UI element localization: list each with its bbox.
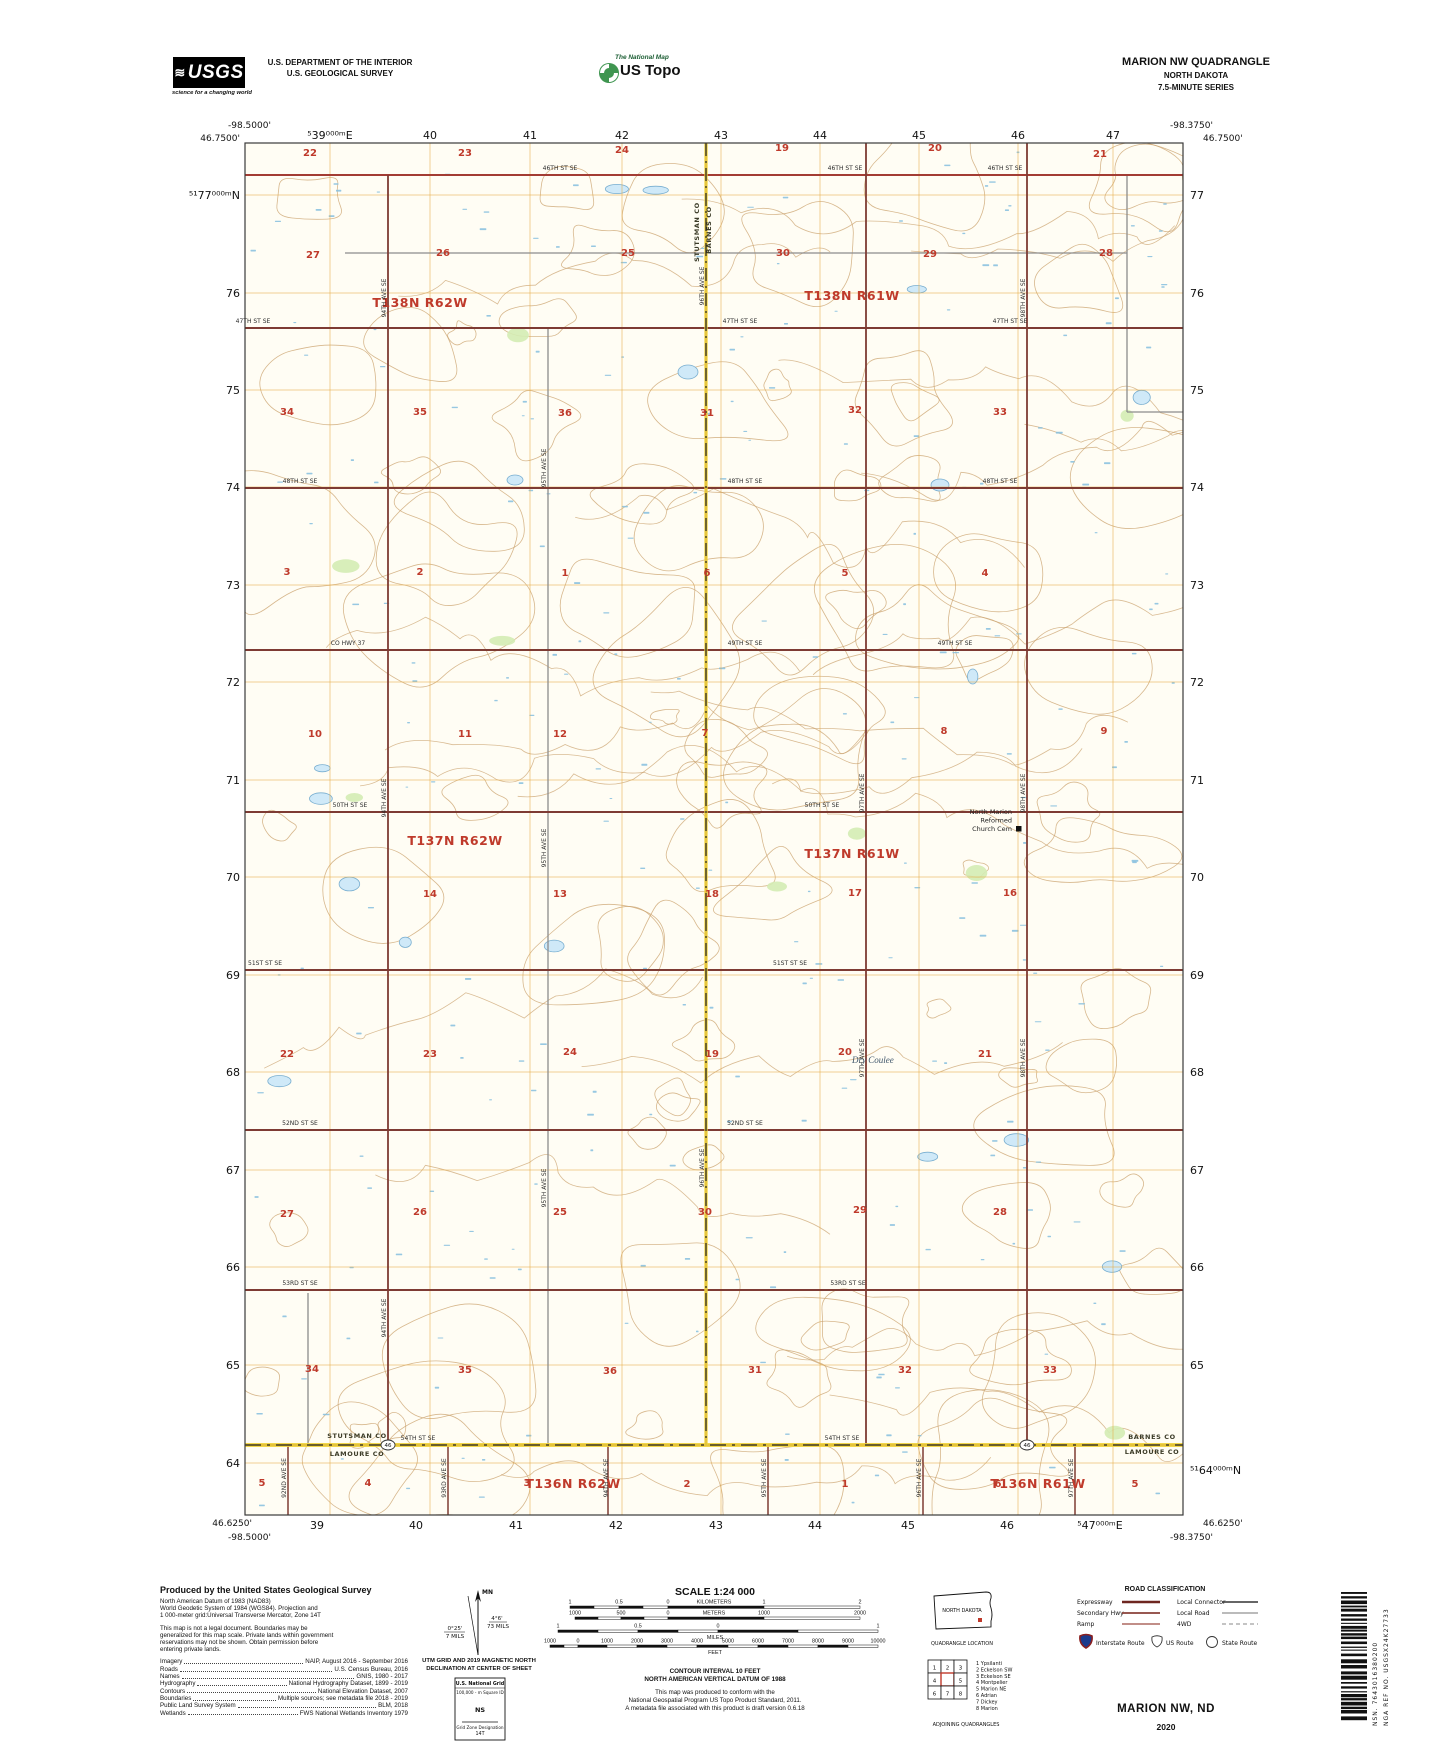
- grid-label-bottom: 42: [609, 1519, 623, 1532]
- wetland-mark: [944, 1062, 947, 1064]
- scalebar-label: 6000: [752, 1639, 764, 1645]
- scalebar-unit: FEET: [708, 1650, 722, 1656]
- county-name-vertical: BARNES CO: [705, 206, 713, 254]
- scalebar-segment: [697, 1645, 728, 1647]
- credit-row: BoundariesMultiple sources; see metadata…: [160, 1695, 408, 1702]
- grid-label-left: 76: [226, 287, 240, 300]
- road-label-vertical: 96TH AVE SE: [916, 1458, 923, 1497]
- grid-label-bottom: 39: [310, 1519, 324, 1532]
- wetland-mark: [293, 322, 296, 323]
- scalebar-label: 3000: [661, 1639, 673, 1645]
- wetland-mark: [1115, 297, 1119, 299]
- barcode-bar: [1341, 1694, 1367, 1697]
- credit-row: ImageryNAIP, August 2016 - September 201…: [160, 1658, 408, 1665]
- wetland-mark: [1149, 609, 1153, 611]
- section-number: 25: [553, 1207, 567, 1218]
- section-number: 19: [775, 143, 789, 154]
- declination-gn-line: [468, 1596, 478, 1655]
- church-label: North Marion: [970, 808, 1012, 816]
- section-number: 11: [458, 729, 472, 740]
- roadclass-label: Expressway: [1077, 1599, 1113, 1606]
- grid-label-left: 72: [226, 676, 240, 689]
- road-label-vertical: 98TH AVE SE: [1020, 278, 1027, 317]
- county-name: STUTSMAN CO: [327, 1432, 387, 1440]
- barcode-bar: [1341, 1606, 1367, 1608]
- wetland-mark: [444, 1245, 450, 1246]
- wetland-mark: [490, 1277, 496, 1279]
- wetland-mark: [301, 1378, 307, 1379]
- scalebar-segment: [550, 1645, 564, 1647]
- road-label: 51ST ST SE: [773, 960, 807, 967]
- road-label: 47TH ST SE: [723, 318, 758, 325]
- wetland-mark: [1013, 1243, 1016, 1245]
- wetland-mark: [523, 401, 527, 403]
- wetland-mark: [685, 1258, 690, 1260]
- road-label: 52ND ST SE: [282, 1120, 318, 1127]
- section-number: 32: [848, 405, 862, 416]
- pond: [310, 793, 333, 805]
- grid-label-top: 40: [423, 129, 437, 142]
- wetland-mark: [914, 435, 920, 437]
- section-number: 18: [705, 889, 719, 900]
- declination-gn-mils: 7 MILS: [446, 1634, 465, 1640]
- road-label: 48TH ST SE: [983, 478, 1018, 485]
- wetland-mark: [304, 355, 308, 356]
- wetland-mark: [709, 870, 713, 871]
- wetland-mark: [1131, 225, 1135, 226]
- wetland-mark: [259, 1505, 265, 1507]
- wetland-mark: [926, 1249, 931, 1250]
- wetland-mark: [1038, 427, 1043, 429]
- road-label-vertical: 94TH AVE SE: [381, 778, 388, 817]
- county-name: BARNES CO: [1128, 1433, 1176, 1441]
- scalebar-segment: [764, 1617, 860, 1619]
- section-number: 30: [776, 248, 790, 259]
- wetland-mark: [462, 209, 467, 210]
- wetland-mark: [450, 1025, 455, 1027]
- grid-label-bottom: 44: [808, 1519, 822, 1532]
- scalebar-segment: [678, 1630, 718, 1632]
- scalebar-label: 1: [877, 1624, 880, 1630]
- scalebar-label: 9000: [842, 1639, 854, 1645]
- wetland-mark: [1050, 805, 1057, 806]
- scalebar-label: 2000: [854, 1611, 866, 1617]
- wetland-mark: [810, 978, 813, 979]
- scalebar-label: 4000: [691, 1639, 703, 1645]
- corner-coordinate: -98.3750': [1170, 1533, 1213, 1543]
- scalebar-label: 1000: [601, 1639, 613, 1645]
- declination-mn: MN: [482, 1589, 493, 1596]
- road-label-vertical: 92ND AVE SE: [281, 1458, 288, 1498]
- scalebar-segment: [644, 1617, 668, 1619]
- legal-line: generalized for this map scale. Private …: [160, 1632, 410, 1639]
- wetland-mark: [972, 882, 978, 884]
- road-label-vertical: 96TH AVE SE: [699, 1148, 706, 1187]
- conformance-line: National Geospatial Program US Topo Prod…: [565, 1697, 865, 1705]
- wetland-mark: [438, 1338, 444, 1339]
- wetland-mark: [531, 418, 534, 419]
- credit-value: FWS National Wetlands Inventory 1979: [300, 1710, 408, 1717]
- wetland-mark: [784, 323, 788, 325]
- barcode-bar: [1341, 1601, 1367, 1605]
- wetland-mark: [1159, 230, 1163, 232]
- wetland-mark: [1132, 653, 1137, 655]
- road-label: CO HWY 37: [331, 640, 366, 647]
- footer-diagrams-layer: 10.50KILOMETERS1210005000METERS100020001…: [444, 1586, 1390, 1740]
- scalebar-label: 10000: [871, 1639, 886, 1645]
- credit-leader: [197, 1680, 286, 1686]
- grid-label-right: 65: [1190, 1359, 1204, 1372]
- road-label: 47TH ST SE: [236, 318, 271, 325]
- wetland-mark: [256, 1413, 262, 1415]
- map-canvas: 2223241920212726253029283435363132333216…: [0, 0, 1445, 1746]
- scalebar-label: 0: [577, 1639, 580, 1645]
- wetland-mark: [760, 1362, 766, 1363]
- barcode-bar: [1341, 1654, 1367, 1657]
- wetland-mark: [981, 1259, 985, 1260]
- sheet-year: 2020: [1090, 1722, 1242, 1732]
- wetland-mark: [1007, 1121, 1013, 1123]
- wetland-mark: [469, 1231, 474, 1232]
- wetland-mark: [435, 1387, 439, 1389]
- barcode-bar: [1341, 1682, 1367, 1684]
- credit-leader: [184, 1658, 303, 1664]
- wetland-mark: [431, 781, 435, 782]
- wetland-mark: [895, 1206, 898, 1207]
- corner-coordinate: 46.6250': [212, 1519, 252, 1529]
- scalebar-label: 0.5: [634, 1624, 642, 1630]
- wetland-mark: [484, 1258, 488, 1259]
- wetland-mark: [815, 963, 822, 965]
- adjoining-cell-number: 2: [946, 1666, 950, 1672]
- wetland-mark: [743, 431, 747, 432]
- wetland-mark: [982, 264, 989, 266]
- scalebar-segment: [764, 1606, 860, 1608]
- data-source-credits: ImageryNAIP, August 2016 - September 201…: [160, 1658, 410, 1716]
- wetland-mark: [1165, 573, 1168, 574]
- wetland-mark: [540, 1043, 547, 1045]
- wetland-mark: [596, 768, 601, 769]
- adjoining-cell: [941, 1673, 954, 1686]
- grid-label-bottom: 41: [509, 1519, 523, 1532]
- road-label-vertical: 94TH AVE SE: [603, 1458, 610, 1497]
- barcode-bar: [1341, 1659, 1367, 1663]
- wetland-mark: [783, 197, 789, 199]
- wetland-mark: [883, 634, 888, 635]
- credit-source: Contours: [160, 1688, 185, 1695]
- scalebar-label: 2: [859, 1600, 862, 1606]
- credit-row: NamesGNIS, 1980 - 2017: [160, 1673, 408, 1680]
- wetland-mark: [803, 983, 807, 985]
- corner-coordinate: -98.5000': [228, 1533, 271, 1543]
- legal-line: This map is not a legal document. Bounda…: [160, 1625, 410, 1632]
- wetland-mark: [564, 674, 568, 675]
- wetland-mark: [1155, 603, 1159, 605]
- roadclass-label: Local Road: [1177, 1610, 1210, 1617]
- corner-coordinate: -98.5000': [228, 121, 271, 131]
- declination-mn-deg: 4°6': [491, 1616, 502, 1622]
- production-credits: Produced by the United States Geological…: [160, 1585, 410, 1717]
- wetland-mark: [479, 1497, 485, 1498]
- wetland-mark: [1132, 860, 1139, 862]
- road-label: 54TH ST SE: [825, 1435, 860, 1442]
- township-label: T137N R62W: [407, 833, 502, 848]
- wetland-mark: [748, 440, 751, 441]
- scalebar-segment: [598, 1617, 621, 1619]
- adjoining-legend-item: 6 Adrian: [976, 1693, 997, 1699]
- barcode-bar: [1341, 1596, 1367, 1598]
- wetland-mark: [316, 209, 322, 211]
- scalebar-segment: [570, 1606, 594, 1608]
- wetland-mark: [995, 635, 1001, 636]
- corner-coordinate: 46.7500': [1203, 134, 1243, 144]
- county-name: LAMOURE CO: [1125, 1448, 1179, 1456]
- wetland-mark: [850, 1079, 857, 1080]
- section-number: 36: [603, 1366, 617, 1377]
- wetland-mark: [736, 1279, 740, 1281]
- wetland-mark: [784, 1251, 787, 1253]
- wetland-mark: [522, 415, 525, 416]
- wetland-mark: [770, 1286, 776, 1288]
- wetland-mark: [643, 968, 647, 969]
- section-number: 24: [615, 145, 629, 156]
- scalebar-label: 0: [667, 1611, 670, 1617]
- section-number: 29: [853, 1205, 867, 1216]
- wetland-mark: [352, 604, 359, 606]
- scalebar-segment: [667, 1645, 697, 1647]
- wetland-mark: [777, 263, 780, 264]
- township-label: T137N R61W: [804, 846, 899, 861]
- wetland-mark: [407, 722, 410, 723]
- adjoining-cell-number: 8: [959, 1692, 963, 1698]
- grid-label-bottom: 40: [409, 1519, 423, 1532]
- barcode-nsn: NSN. 7643016380200: [1372, 1642, 1379, 1726]
- grid-label-bottom: ⁵47⁰⁰⁰ᵐE: [1077, 1519, 1122, 1532]
- wetland-mark: [603, 612, 609, 613]
- wetland-mark: [367, 1187, 372, 1189]
- wetland-mark: [962, 233, 965, 234]
- wetland-mark: [526, 1435, 531, 1437]
- wetland-mark: [993, 264, 998, 266]
- wetland-mark: [1063, 335, 1067, 337]
- section-number: 21: [1093, 149, 1107, 160]
- scalebar-segment: [598, 1630, 638, 1632]
- section-number: 36: [558, 408, 572, 419]
- section-number: 25: [621, 248, 635, 259]
- grid-label-left: 69: [226, 969, 240, 982]
- wetland-mark: [494, 700, 497, 701]
- wetland-mark: [888, 957, 892, 958]
- grid-label-right: 67: [1190, 1164, 1204, 1177]
- wetland-mark: [533, 238, 539, 239]
- wetland-mark: [785, 1459, 789, 1461]
- wetland-mark: [940, 652, 947, 654]
- barcode-bar: [1341, 1676, 1367, 1680]
- grid-label-left: 74: [226, 481, 240, 494]
- wetland-mark: [1005, 209, 1009, 211]
- section-number: 20: [928, 143, 942, 154]
- wetland-mark: [895, 1387, 900, 1388]
- barcode-bar: [1341, 1592, 1367, 1594]
- road-label: 49TH ST SE: [938, 640, 973, 647]
- section-number: 21: [978, 1049, 992, 1060]
- section-number: 9: [1101, 726, 1108, 737]
- barcode-bar: [1341, 1637, 1367, 1640]
- pond: [507, 475, 523, 485]
- pond: [907, 286, 926, 294]
- section-number: 13: [553, 889, 567, 900]
- wetland-mark: [518, 1269, 522, 1271]
- wetland-mark: [944, 165, 950, 167]
- us-route-shield-icon: [1152, 1636, 1162, 1647]
- wetland-mark: [649, 722, 652, 723]
- scalebar-segment: [668, 1606, 764, 1608]
- vegetation-patch: [767, 882, 787, 892]
- wetland-mark: [553, 654, 558, 656]
- road-label: 52ND ST SE: [727, 1120, 763, 1127]
- wetland-mark: [1082, 484, 1089, 486]
- grid-label-right: 70: [1190, 871, 1204, 884]
- barcode-bar: [1341, 1691, 1367, 1692]
- section-number: 19: [705, 1049, 719, 1060]
- wetland-mark: [904, 863, 907, 864]
- section-number: 22: [280, 1049, 294, 1060]
- wetland-mark: [1007, 753, 1012, 755]
- credit-row: HydrographyNational Hydrography Dataset,…: [160, 1680, 408, 1687]
- scalebar-segment: [818, 1645, 848, 1647]
- wetland-mark: [351, 459, 354, 461]
- datum-line: World Geodetic System of 1984 (WGS84). P…: [160, 1605, 410, 1612]
- interstate-shield-icon: [1080, 1635, 1092, 1649]
- section-number: 1: [842, 1479, 849, 1490]
- route-legend-label: Interstate Route: [1096, 1640, 1145, 1647]
- natgrid-square-label: 100,000 - m Square ID: [456, 1690, 503, 1695]
- section-number: 29: [923, 249, 937, 260]
- wetland-mark: [506, 677, 509, 679]
- barcode-bar: [1341, 1686, 1367, 1688]
- declination-mn-mils: 73 MILS: [487, 1624, 509, 1630]
- grid-label-top: 46: [1011, 129, 1025, 142]
- section-number: 26: [413, 1207, 427, 1218]
- wetland-mark: [1161, 286, 1164, 288]
- wetland-mark: [486, 315, 491, 317]
- natgrid-zone: 14T: [475, 1731, 484, 1737]
- wetland-mark: [1023, 959, 1026, 960]
- wetland-mark: [1132, 862, 1137, 864]
- roadclass-title: ROAD CLASSIFICATION: [1125, 1586, 1206, 1593]
- pond: [268, 1076, 291, 1087]
- section-number: 5: [842, 568, 849, 579]
- wetland-mark: [1124, 741, 1128, 743]
- credit-row: Public Land Survey SystemBLM, 2018: [160, 1702, 408, 1709]
- wetland-mark: [1023, 842, 1026, 844]
- scalebar-segment: [619, 1606, 643, 1608]
- wetland-mark: [1078, 1003, 1085, 1004]
- scalebar-segment: [637, 1645, 667, 1647]
- scalebar-segment: [578, 1645, 607, 1647]
- adjoining-cell-number: 7: [946, 1692, 950, 1698]
- vegetation-patch: [848, 828, 866, 840]
- roadclass-label: Secondary Hwy: [1077, 1610, 1124, 1617]
- pond: [339, 877, 360, 891]
- wetland-mark: [360, 1156, 364, 1157]
- vegetation-patch: [966, 865, 988, 881]
- wetland-mark: [878, 1374, 884, 1376]
- section-number: 23: [458, 148, 472, 159]
- wetland-mark: [980, 935, 987, 937]
- wetland-mark: [519, 782, 524, 784]
- wetland-mark: [489, 1099, 492, 1100]
- quad-location-caption: QUADRANGLE LOCATION: [931, 1641, 993, 1647]
- section-number: 1: [562, 568, 569, 579]
- natgrid-zone-label: Grid Zone Designation: [456, 1725, 504, 1730]
- road-label: 46TH ST SE: [828, 165, 863, 172]
- conformance-line: This map was produced to conform with th…: [565, 1689, 865, 1697]
- grid-label-left: 64: [226, 1457, 240, 1470]
- barcode-nga: NGA REF NO. USGSX24K27733: [1383, 1608, 1390, 1726]
- wetland-mark: [886, 1434, 891, 1436]
- vegetation-patch: [489, 636, 515, 646]
- barcode-bar: [1341, 1619, 1367, 1621]
- wetland-mark: [1033, 973, 1037, 974]
- wetland-mark: [1023, 1167, 1026, 1169]
- quad-location-marker: [978, 1618, 982, 1622]
- corner-coordinate: -98.3750': [1170, 121, 1213, 131]
- wetland-mark: [1120, 1250, 1126, 1252]
- wetland-mark: [903, 603, 906, 605]
- grid-label-top: 42: [615, 129, 629, 142]
- wetland-mark: [625, 1323, 629, 1324]
- scalebar-label: 1000: [569, 1611, 581, 1617]
- wetland-mark: [947, 309, 950, 310]
- credit-source: Names: [160, 1673, 180, 1680]
- grid-label-bottom: 43: [709, 1519, 723, 1532]
- section-number: 4: [365, 1478, 372, 1489]
- wetland-mark: [482, 1459, 485, 1461]
- pond: [643, 186, 668, 194]
- barcode-bar: [1341, 1650, 1367, 1651]
- wetland-mark: [985, 185, 988, 187]
- wetland-mark: [275, 221, 281, 222]
- credit-row: RoadsU.S. Census Bureau, 2016: [160, 1666, 408, 1673]
- church-label: Reformed: [980, 817, 1012, 825]
- pond: [399, 937, 411, 947]
- section-number: 2: [684, 1479, 691, 1490]
- section-number: 5: [1132, 1479, 1139, 1490]
- pond: [931, 479, 949, 491]
- stream-name: Dry Coulee: [851, 1055, 894, 1065]
- section-number: 32: [898, 1365, 912, 1376]
- road-label-vertical: 95TH AVE SE: [761, 1458, 768, 1497]
- section-number: 35: [458, 1365, 472, 1376]
- wetland-mark: [1008, 205, 1011, 206]
- wetland-mark: [677, 678, 681, 680]
- wetland-mark: [1045, 1354, 1049, 1355]
- roadclass-label: Local Connector: [1177, 1599, 1226, 1606]
- barcode-bar: [1341, 1614, 1367, 1616]
- wetland-mark: [534, 1183, 537, 1184]
- scalebar-segment: [848, 1645, 878, 1647]
- church-marker: [1016, 826, 1022, 832]
- scalebar-segment: [668, 1617, 764, 1619]
- road-label-vertical: 98TH AVE SE: [1020, 773, 1027, 812]
- barcode-bar: [1341, 1702, 1367, 1706]
- section-number: 27: [280, 1209, 294, 1220]
- wetland-mark: [992, 1140, 997, 1142]
- road-label-vertical: 95TH AVE SE: [541, 828, 548, 867]
- scalebar-label: 1: [569, 1600, 572, 1606]
- grid-label-bottom: 45: [901, 1519, 915, 1532]
